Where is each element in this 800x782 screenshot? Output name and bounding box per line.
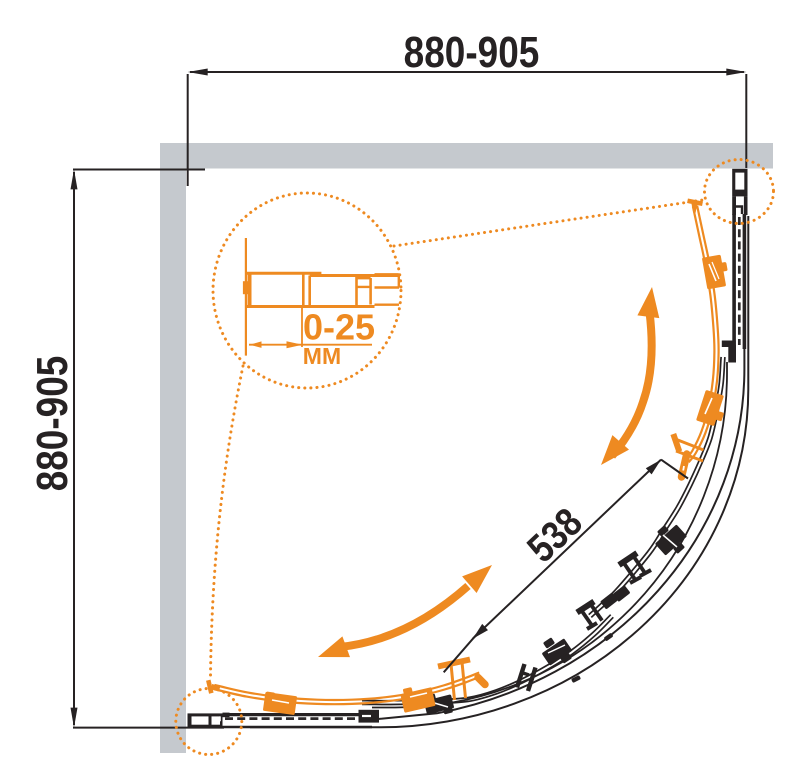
svg-text:MM: MM bbox=[303, 343, 341, 369]
svg-text:880-905: 880-905 bbox=[27, 356, 77, 492]
svg-text:538: 538 bbox=[518, 499, 590, 571]
svg-text:880-905: 880-905 bbox=[404, 27, 540, 77]
svg-text:0-25: 0-25 bbox=[303, 307, 375, 348]
